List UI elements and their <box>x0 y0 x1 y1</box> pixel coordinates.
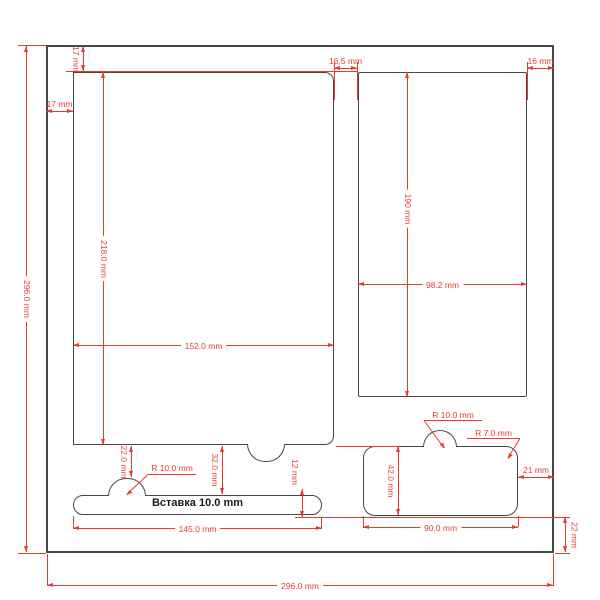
dim-right-pocket-width: 98.2 mm <box>358 284 527 285</box>
dim-label: 190 mm <box>403 189 412 228</box>
right-pocket <box>358 72 527 397</box>
dim-label: 16,5 mm <box>329 57 362 66</box>
dim-label: 218.0 mm <box>99 236 108 282</box>
dim-label: 296.0 mm <box>277 580 323 591</box>
dim-label: 16 mm <box>528 57 554 66</box>
dim-label: 21 mm <box>523 466 549 475</box>
left-pocket <box>73 72 334 445</box>
extension-line <box>66 71 358 72</box>
dim-label: 22 mm <box>570 522 579 548</box>
dim-label: 98.2 mm <box>422 279 463 290</box>
extension-line <box>555 553 570 554</box>
dim-right-pocket-height: 190 mm <box>407 72 408 397</box>
dim-outer-width: 296.0 mm <box>47 585 553 586</box>
dim-left-pocket-width: 152.0 mm <box>73 345 334 346</box>
extension-line <box>357 62 358 100</box>
dim-label: 17 mm <box>47 100 73 109</box>
dim-tray-corner-radius: R 7.0 mm <box>467 429 520 438</box>
radius-underline <box>467 438 520 439</box>
drawing-sheet: Вставка 10.0 mm 296.0 mm 296.0 mm 17 mm … <box>0 0 600 600</box>
extension-line <box>18 45 46 46</box>
dim-top-margin: 17 mm <box>83 46 84 71</box>
dim-label: 17 mm <box>72 46 81 72</box>
extension-line <box>336 446 398 447</box>
dim-tray-bump-radius: R 10.0 mm <box>424 411 482 420</box>
extension-line <box>47 554 48 586</box>
dim-label: 42.0 mm <box>387 464 396 497</box>
dim-left-pocket-height: 218.0 mm <box>103 72 104 445</box>
radius-underline <box>424 420 482 421</box>
dim-label: 296.0 mm <box>22 276 31 322</box>
dim-label: 32.0 mm <box>211 453 220 486</box>
extension-line <box>295 517 570 518</box>
dim-tray-height: 42.0 mm <box>398 446 399 515</box>
dim-label: 152.0 mm <box>181 340 227 351</box>
dim-label: 90.0 mm <box>420 522 461 533</box>
dim-right-margin: 16 mm <box>527 68 554 69</box>
dim-tray-bottom-margin: 22 mm <box>565 517 566 552</box>
dim-center-gap: 16,5 mm <box>334 68 357 69</box>
dim-outer-height: 296.0 mm <box>26 46 27 552</box>
dim-label: 22.0 mm <box>120 445 129 478</box>
dim-strip-bump-radius: R 10.0 mm <box>148 464 196 473</box>
dim-strip-height: 12 mm <box>302 489 303 517</box>
dim-strip-width: 145.0 mm <box>73 528 322 529</box>
dim-tray-right-margin: 21 mm <box>518 477 554 478</box>
dim-strip-offset: 32.0 mm <box>222 446 223 494</box>
dim-left-margin: 17 mm <box>46 111 73 112</box>
dim-tray-width: 90.0 mm <box>363 527 518 528</box>
dim-label: 12 mm <box>291 459 300 485</box>
dim-notch-offset: 22.0 mm <box>131 446 132 477</box>
dim-label: 145.0 mm <box>175 523 221 534</box>
insert-label: Вставка 10.0 mm <box>130 497 265 509</box>
radius-underline <box>148 474 196 475</box>
extension-line <box>518 516 519 527</box>
extension-line <box>18 553 46 554</box>
extension-line <box>553 554 554 586</box>
